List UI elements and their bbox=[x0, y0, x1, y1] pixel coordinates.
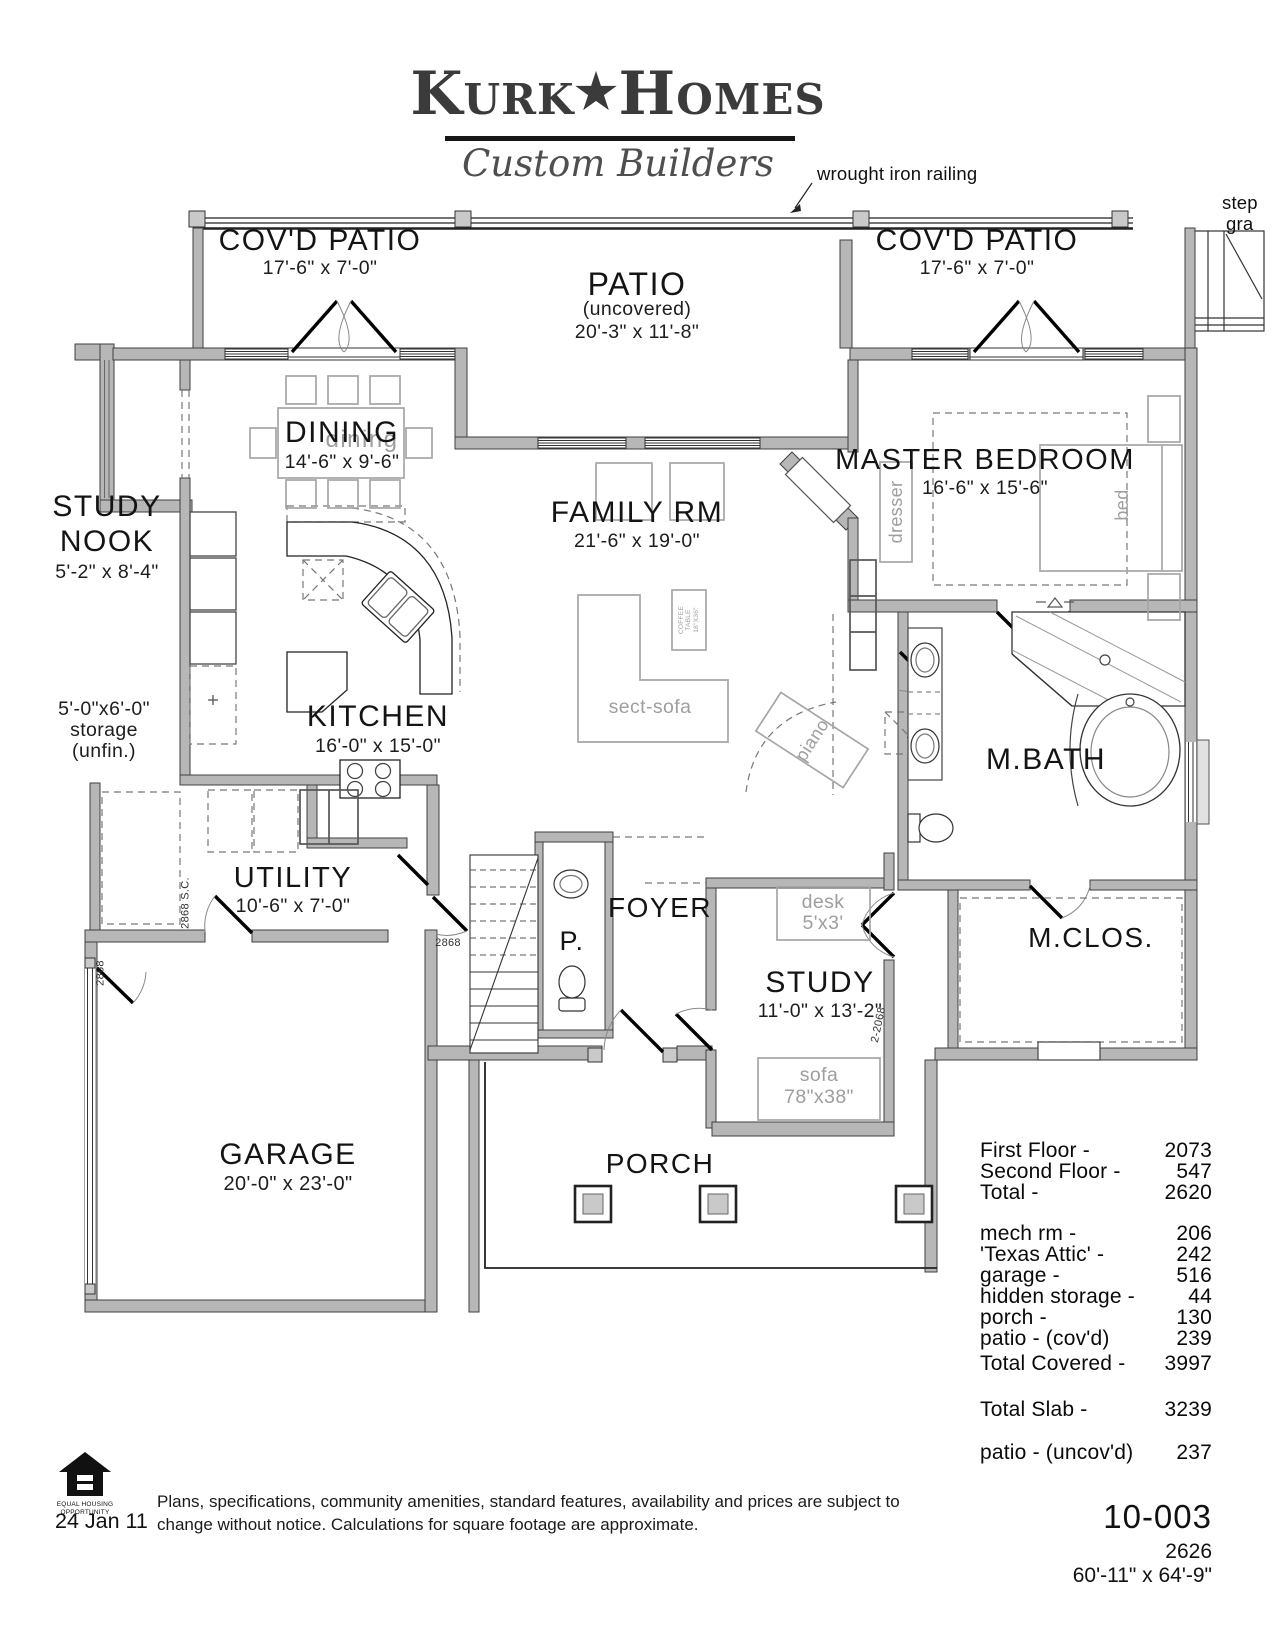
room-dims-master: 16'-6" x 15'-6" bbox=[922, 479, 1048, 499]
furniture-label-desk: desk bbox=[802, 893, 845, 913]
exterior-steps bbox=[1192, 231, 1264, 331]
logo-underline bbox=[445, 136, 795, 141]
room-label-utility: UTILITY bbox=[234, 864, 352, 893]
table-row-patio-covd: patio - (cov'd)239 bbox=[980, 1327, 1212, 1351]
furniture-label-coffee-table: COFFEE TABLE 18"X36" bbox=[678, 606, 700, 634]
room-dims-covd-patio-right: 17'-6" x 7'-0" bbox=[920, 259, 1035, 279]
room-dims-family: 21'-6" x 19'-0" bbox=[574, 532, 700, 552]
room-dims-patio: 20'-3" x 11'-8" bbox=[575, 323, 700, 343]
railing-annotation: wrought iron railing bbox=[817, 163, 977, 185]
table-row-total-covered: Total Covered -3997 bbox=[980, 1352, 1212, 1376]
room-label-patio: PATIO bbox=[588, 268, 687, 300]
door-tag-utility: 2868 bbox=[435, 938, 461, 949]
room-label-kitchen: KITCHEN bbox=[307, 702, 449, 732]
room-dims-study: 11'-0" x 13'-2" bbox=[758, 1002, 883, 1022]
room-label-foyer: FOYER bbox=[608, 894, 712, 922]
storage-label-3: (unfin.) bbox=[72, 742, 136, 762]
table-row-total-slab: Total Slab -3239 bbox=[980, 1398, 1212, 1422]
steps-annotation-line2: gra bbox=[1226, 213, 1253, 235]
furniture-label-bed: bed bbox=[1113, 489, 1131, 520]
logo-subtitle: Custom Builders bbox=[462, 142, 774, 185]
steps-annotation-line1: step bbox=[1222, 192, 1258, 214]
plan-number: 10-003 bbox=[1103, 1498, 1212, 1536]
room-label-dining: DINING bbox=[285, 418, 399, 448]
furniture-dims-desk: 5'x3' bbox=[803, 914, 844, 934]
floor-plan-sheet: Kurk★Homes Custom Builders wrought iron … bbox=[0, 0, 1275, 1650]
room-label-garage: GARAGE bbox=[219, 1140, 356, 1170]
room-label-covd-patio-right: COV'D PATIO bbox=[876, 226, 1079, 256]
room-label-powder: P. bbox=[559, 928, 584, 955]
room-dims-dining: 14'-6" x 9'-6" bbox=[285, 453, 400, 473]
room-label-study-nook-1: STUDY bbox=[52, 492, 161, 522]
furniture-label-sofa: sofa bbox=[800, 1066, 838, 1086]
storage-label-1: 5'-0"x6'-0" bbox=[58, 700, 150, 720]
plan-overall-dims: 60'-11" x 64'-9" bbox=[1073, 1564, 1212, 1588]
room-dims-study-nook: 5'-2" x 8'-4" bbox=[55, 563, 158, 583]
door-tag-utility-sc: 2868 S.C. bbox=[181, 877, 192, 929]
disclaimer-line-1: Plans, specifications, community ameniti… bbox=[157, 1492, 900, 1512]
railing-leader-line bbox=[790, 183, 812, 213]
furniture-label-dresser: dresser bbox=[887, 481, 905, 544]
door-tag-garage: 2868 bbox=[96, 960, 107, 986]
star-icon: ★ bbox=[575, 64, 619, 120]
table-row-patio-uncovd: patio - (uncov'd)237 bbox=[980, 1441, 1212, 1465]
storage-label-2: storage bbox=[70, 721, 138, 741]
room-label-mclos: M.CLOS. bbox=[1028, 924, 1154, 952]
plan-date: 24 Jan 11 bbox=[55, 1509, 148, 1534]
room-dims-garage: 20'-0" x 23'-0" bbox=[223, 1174, 352, 1194]
furniture-dims-sofa: 78"x38" bbox=[784, 1088, 854, 1108]
furniture-label-sect-sofa: sect-sofa bbox=[609, 698, 692, 718]
room-label-study: STUDY bbox=[765, 968, 874, 998]
plan-sqft: 2626 bbox=[1165, 1540, 1212, 1564]
room-label-mbath: M.BATH bbox=[986, 745, 1106, 775]
room-label-covd-patio-left: COV'D PATIO bbox=[219, 226, 422, 256]
room-label-family: FAMILY RM bbox=[551, 498, 723, 528]
staircase bbox=[470, 855, 538, 1053]
disclaimer-line-2: change without notice. Calculations for … bbox=[157, 1515, 699, 1535]
logo-kurk-homes: Kurk★Homes bbox=[410, 64, 825, 124]
eho-caption-1: EQUAL HOUSING bbox=[57, 1501, 114, 1508]
room-dims-kitchen: 16'-0" x 15'-0" bbox=[315, 737, 441, 757]
room-dims-utility: 10'-6" x 7'-0" bbox=[236, 897, 351, 917]
room-dims-covd-patio-left: 17'-6" x 7'-0" bbox=[263, 259, 378, 279]
room-label-study-nook-2: NOOK bbox=[60, 527, 154, 557]
room-label-master: MASTER BEDROOM bbox=[835, 446, 1135, 475]
room-label-porch: PORCH bbox=[606, 1150, 715, 1178]
table-row-total: Total -2620 bbox=[980, 1181, 1212, 1205]
room-sub-patio: (uncovered) bbox=[583, 300, 691, 320]
equal-housing-icon bbox=[57, 1450, 113, 1500]
